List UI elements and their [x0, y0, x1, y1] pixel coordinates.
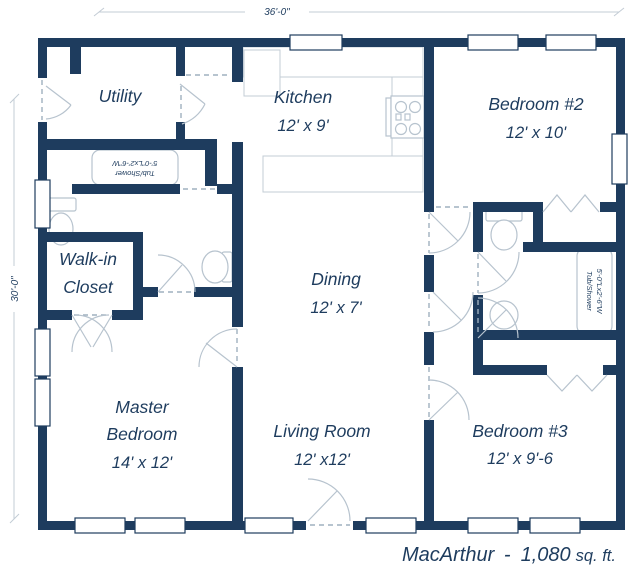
room-label-bedroom3: Bedroom #3: [472, 421, 568, 441]
svg-text:5'-0"Lx2'-6"W: 5'-0"Lx2'-6"W: [112, 159, 158, 168]
window: [468, 35, 518, 50]
exterior-wall-right: [616, 38, 625, 530]
door-swing-icon: [478, 252, 519, 293]
room-label-walkin-1: Walk-in: [59, 249, 117, 269]
window: [366, 518, 416, 533]
kitchen-peninsula: [263, 156, 423, 192]
window: [135, 518, 185, 533]
door-swing-icon: [429, 212, 470, 253]
room-label-utility: Utility: [99, 86, 143, 106]
room-size-bedroom3: 12' x 9'-6: [487, 450, 554, 468]
door-swing-icon: [433, 292, 473, 332]
room-label-bedroom2: Bedroom #2: [488, 94, 584, 114]
labels: 36'-0" 30'-0" Utility Kitchen 12' x 9' B…: [10, 7, 616, 566]
room-label-dining: Dining: [311, 269, 361, 289]
floor-plan: 36'-0" 30'-0" Utility Kitchen 12' x 9' B…: [0, 0, 628, 586]
stove-icon: [386, 96, 424, 138]
door-swing-icon: [180, 84, 205, 124]
window: [530, 518, 580, 533]
door-swing-icon: [75, 315, 112, 352]
room-size-master: 14' x 12': [112, 454, 173, 472]
room-size-bedroom2: 12' x 10': [506, 124, 567, 142]
plan-caption: MacArthur-1,080sq. ft.: [402, 544, 616, 566]
svg-text:5'-0"Lx2'-6"W: 5'-0"Lx2'-6"W: [595, 269, 604, 315]
tub-left-label: Tub/Shower 5'-0"Lx2'-6"W: [112, 159, 158, 178]
room-size-dining: 12' x 7': [310, 299, 362, 317]
bifold-closet-icon: [547, 375, 607, 391]
tub-right-label: 5'-0"Lx2'-6"W Tub/Shower: [585, 269, 604, 315]
width-dimension-label: 36'-0": [264, 7, 290, 18]
window: [35, 329, 50, 376]
room-size-kitchen: 12' x 9': [277, 117, 329, 135]
sink-icon: [490, 301, 518, 329]
door-swing-icon: [72, 315, 109, 352]
window: [245, 518, 293, 533]
room-label-living: Living Room: [273, 421, 370, 441]
door-swing-icon: [158, 255, 195, 292]
window: [35, 180, 50, 228]
door-swing-icon: [199, 329, 237, 367]
room-size-living: 12' x12': [294, 451, 351, 469]
door-swing-icon: [429, 380, 469, 420]
window: [612, 134, 627, 184]
svg-text:Tub/Shower: Tub/Shower: [115, 169, 155, 178]
window: [290, 35, 342, 50]
bifold-closet-icon: [543, 195, 599, 212]
height-dimension-label: 30'-0": [10, 276, 21, 302]
room-label-master-2: Bedroom: [106, 424, 177, 444]
window: [546, 35, 596, 50]
window: [468, 518, 518, 533]
svg-text:Tub/Shower: Tub/Shower: [585, 271, 594, 311]
floor-plan-drawing: 36'-0" 30'-0" Utility Kitchen 12' x 9' B…: [0, 0, 628, 586]
room-label-master-1: Master: [115, 397, 170, 417]
room-label-walkin-2: Closet: [63, 277, 114, 297]
window: [35, 379, 50, 426]
kitchen-counters: [243, 47, 424, 192]
room-label-kitchen: Kitchen: [274, 87, 332, 107]
front-door-swing-icon: [308, 479, 350, 521]
door-swing-icon: [46, 86, 71, 119]
window: [75, 518, 125, 533]
toilet-icon: [486, 208, 522, 250]
toilet-icon: [202, 251, 232, 283]
